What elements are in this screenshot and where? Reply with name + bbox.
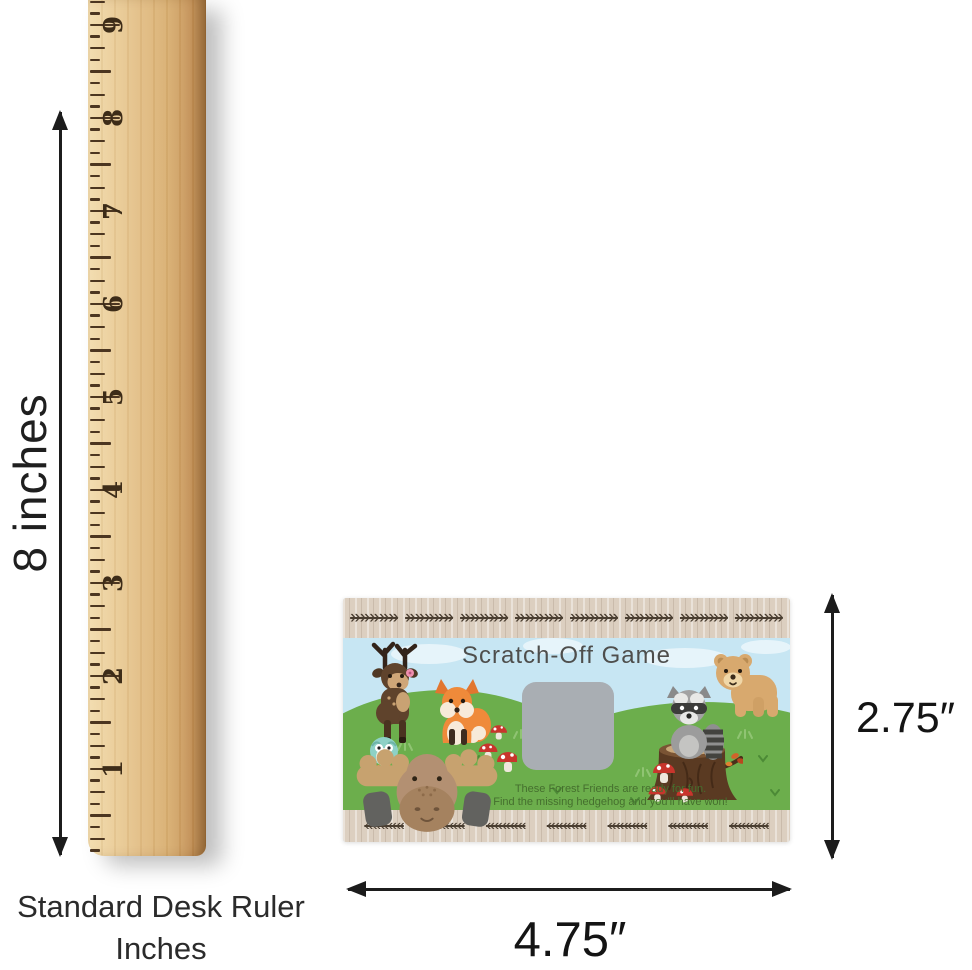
ruler-tick — [90, 442, 111, 444]
scratch-off-area — [522, 682, 614, 770]
branch-pattern-icon: »»»»» — [625, 607, 673, 629]
ruler-tick — [90, 233, 105, 235]
ruler-tick — [90, 628, 111, 630]
card-top-border: »»»»»»»»»»»»»»»»»»»»»»»»»»»»»»»»»»»»»»»» — [343, 598, 790, 638]
ruler-tick — [90, 803, 100, 805]
ruler-tick — [90, 849, 100, 851]
ruler-tick — [90, 605, 105, 607]
ruler-number: 7 — [94, 189, 134, 233]
ruler-caption-line2: Inches — [0, 928, 322, 970]
ruler-tick — [90, 349, 111, 351]
ruler-tick — [90, 698, 105, 700]
ruler-tick — [90, 175, 100, 177]
ruler-tick — [90, 82, 100, 84]
ruler-tick — [90, 826, 100, 828]
ruler-tick — [90, 338, 100, 340]
ruler-tick — [90, 733, 100, 735]
bear-icon — [709, 651, 781, 719]
ruler-tick — [90, 326, 105, 328]
ruler-tick — [90, 256, 111, 258]
ruler-number: 1 — [94, 747, 134, 791]
arrow-horizontal-icon — [348, 888, 790, 891]
ruler-tick — [90, 70, 111, 72]
ruler-tick — [90, 245, 100, 247]
ruler-number: 6 — [94, 282, 134, 326]
branch-pattern-icon: »»»»» — [570, 607, 618, 629]
ruler-tick — [90, 152, 100, 154]
ruler-tick — [90, 791, 105, 793]
branch-pattern-icon: »»»»» — [735, 607, 783, 629]
ruler-tick — [90, 838, 105, 840]
ruler-tick — [90, 268, 100, 270]
ruler-tick — [90, 361, 100, 363]
ruler-tick — [90, 512, 105, 514]
branch-pattern-icon: ««««« — [668, 817, 708, 835]
branch-pattern-icon: ««««« — [729, 817, 769, 835]
branch-pattern-icon: »»»»» — [460, 607, 508, 629]
ruler-tick — [90, 454, 100, 456]
ruler-tick — [90, 524, 100, 526]
ruler-tick — [90, 814, 111, 816]
ruler-caption-line1: Standard Desk Ruler — [0, 886, 322, 928]
ruler-tick — [90, 47, 105, 49]
ruler-number: 2 — [94, 654, 134, 698]
branch-pattern-icon: »»»»» — [680, 607, 728, 629]
ruler-number: 8 — [94, 96, 134, 140]
ruler-tick — [90, 547, 100, 549]
branch-pattern-icon: ««««« — [547, 817, 587, 835]
arrow-vertical-icon — [831, 595, 834, 858]
ruler-tick — [90, 431, 100, 433]
scratch-off-game-card: »»»»»»»»»»»»»»»»»»»»»»»»»»»»»»»»»»»»»»»» — [343, 598, 790, 842]
ruler-caption: Standard Desk Ruler Inches — [0, 886, 322, 970]
ruler-number: 9 — [94, 3, 134, 47]
ruler-tick — [90, 419, 105, 421]
ruler-tick — [90, 163, 111, 165]
ruler-tick — [90, 721, 111, 723]
ruler-tick — [90, 59, 100, 61]
ruler-tick — [90, 140, 105, 142]
ruler-number: 4 — [94, 468, 134, 512]
branch-pattern-icon: ««««« — [608, 817, 648, 835]
moose-icon — [351, 740, 503, 842]
ruler-tick — [90, 535, 111, 537]
arrow-vertical-icon — [59, 112, 62, 855]
ruler-tick — [90, 640, 100, 642]
ruler-number: 3 — [94, 561, 134, 605]
ruler-number: 5 — [94, 375, 134, 419]
ruler-tick — [90, 710, 100, 712]
ruler-tick — [90, 617, 100, 619]
wooden-ruler: 987654321 — [88, 0, 206, 856]
branch-pattern-icon: »»»»» — [405, 607, 453, 629]
card-width-label: 4.75″ — [470, 912, 670, 968]
card-height-label: 2.75″ — [856, 694, 955, 743]
branch-pattern-icon: »»»»» — [515, 607, 563, 629]
branch-pattern-icon: »»»»» — [350, 607, 398, 629]
ruler-height-label: 8 inches — [5, 378, 55, 588]
